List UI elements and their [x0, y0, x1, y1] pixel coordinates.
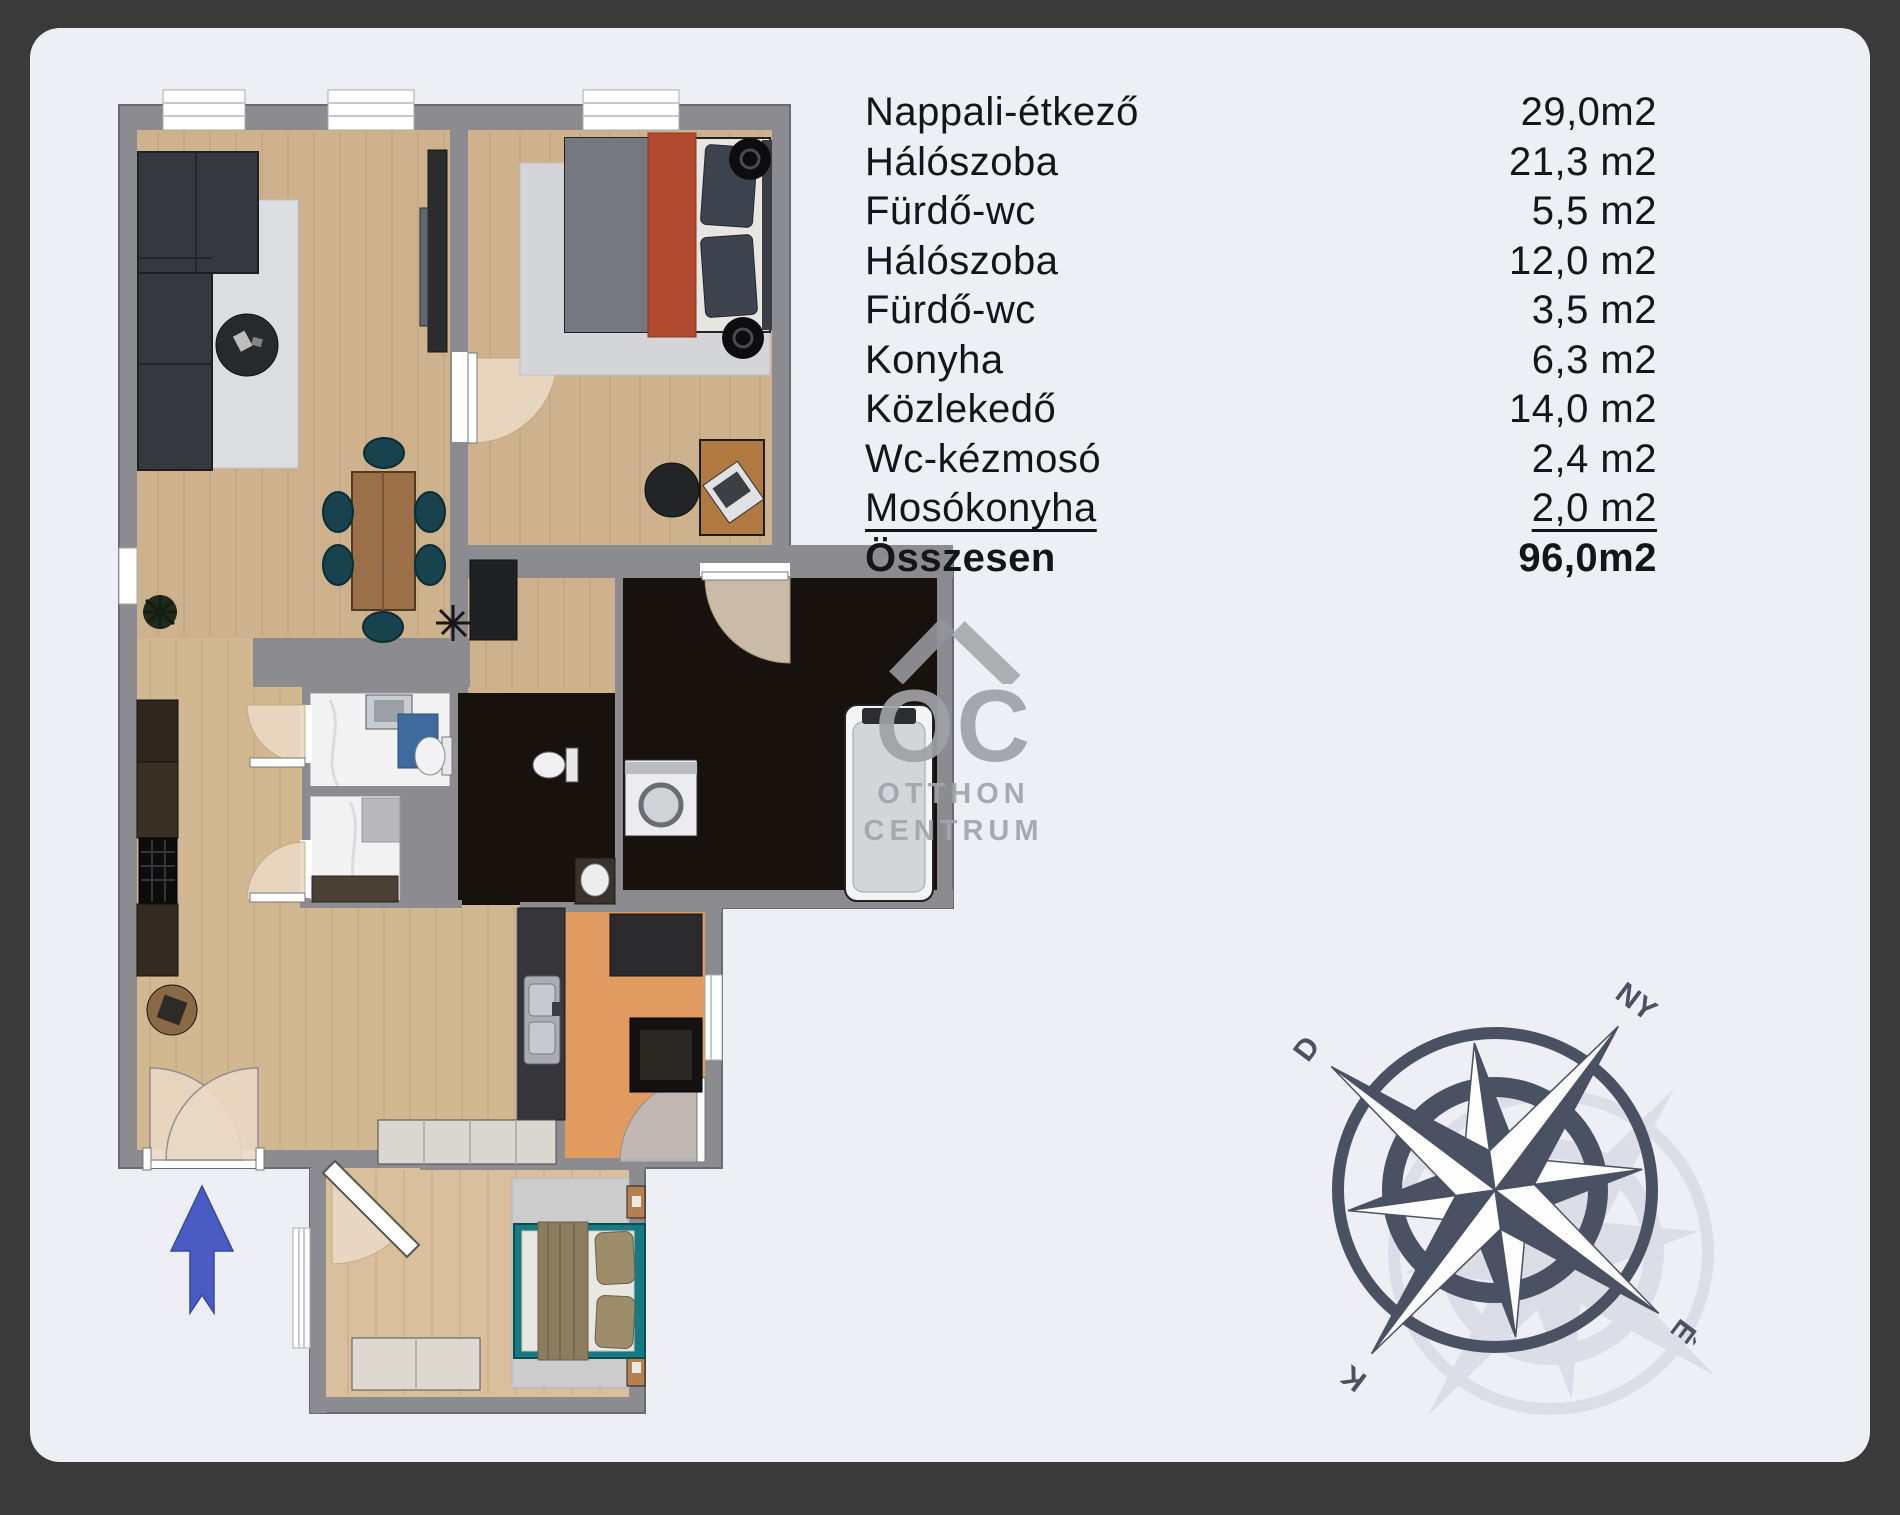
pillow [700, 234, 757, 317]
room-row-total: Összesen 96,0m2 [865, 534, 1657, 584]
compass-label-south: D [1287, 1030, 1326, 1067]
room-name: Hálószoba [865, 140, 1059, 185]
room-name: Mosókonyha [865, 486, 1097, 531]
room-row: Fürdő-wc 5,5 m2 [865, 187, 1657, 237]
room-area: 12,0 m2 [1509, 239, 1657, 284]
pillow [595, 1231, 636, 1285]
watermark-line2: CENTRUM [856, 813, 1051, 850]
room-row-laundry: Mosókonyha 2,0 m2 [865, 484, 1657, 534]
fridge [610, 914, 702, 976]
room-area: 14,0 m2 [1509, 387, 1657, 432]
compass-label-west: NY [1609, 976, 1662, 1027]
speaker [722, 317, 764, 359]
room-name: Fürdő-wc [865, 189, 1036, 234]
watermark-line1: OTTHON [856, 776, 1051, 813]
room-area: 2,0 m2 [1532, 486, 1657, 531]
total-label: Összesen [865, 536, 1056, 581]
pillow [595, 1295, 636, 1349]
room-area: 2,4 m2 [1532, 437, 1657, 482]
room-area: 6,3 m2 [1532, 338, 1657, 383]
toilet [415, 737, 445, 775]
room-row: Hálószoba 12,0 m2 [865, 237, 1657, 287]
room-area: 5,5 m2 [1532, 189, 1657, 234]
shelf [312, 876, 398, 902]
room-name: Konyha [865, 338, 1004, 383]
room-row: Közlekedő 14,0 m2 [865, 385, 1657, 435]
toilet [533, 752, 565, 778]
room-row: Konyha 6,3 m2 [865, 336, 1657, 386]
tv [420, 208, 428, 326]
room-row: Hálószoba 21,3 m2 [865, 138, 1657, 188]
stove [139, 838, 177, 904]
cabinet [137, 700, 178, 762]
room-list: Nappali-étkező 29,0m2 Hálószoba 21,3 m2 … [865, 88, 1657, 583]
room-row: Wc-kézmosó 2,4 m2 [865, 435, 1657, 485]
wardrobe [470, 560, 517, 640]
room-name: Hálószoba [865, 239, 1059, 284]
room-area: 3,5 m2 [1532, 288, 1657, 333]
room-row: Nappali-étkező 29,0m2 [865, 88, 1657, 138]
room-name: Nappali-étkező [865, 90, 1139, 135]
room-name: Wc-kézmosó [865, 437, 1101, 482]
rust-blanket [648, 133, 696, 337]
room-row: Fürdő-wc 3,5 m2 [865, 286, 1657, 336]
room-area: 29,0m2 [1521, 90, 1657, 135]
room-name: Közlekedő [865, 387, 1056, 432]
blanket [538, 1222, 588, 1360]
hall-sofa [378, 1120, 556, 1164]
shower-mat [362, 798, 400, 842]
entrance-arrow [171, 1186, 233, 1313]
room-name: Fürdő-wc [865, 288, 1036, 333]
desk-chair [645, 463, 699, 517]
room-area: 21,3 m2 [1509, 140, 1657, 185]
speaker [729, 138, 771, 180]
hand-basin [581, 864, 609, 896]
oc-monogram: OC [856, 678, 1051, 776]
otthon-centrum-watermark: OC OTTHON CENTRUM [856, 610, 1051, 850]
compass-label-east: K [1335, 1358, 1372, 1398]
total-area: 96,0m2 [1518, 536, 1657, 581]
tv-cabinet [428, 150, 447, 352]
